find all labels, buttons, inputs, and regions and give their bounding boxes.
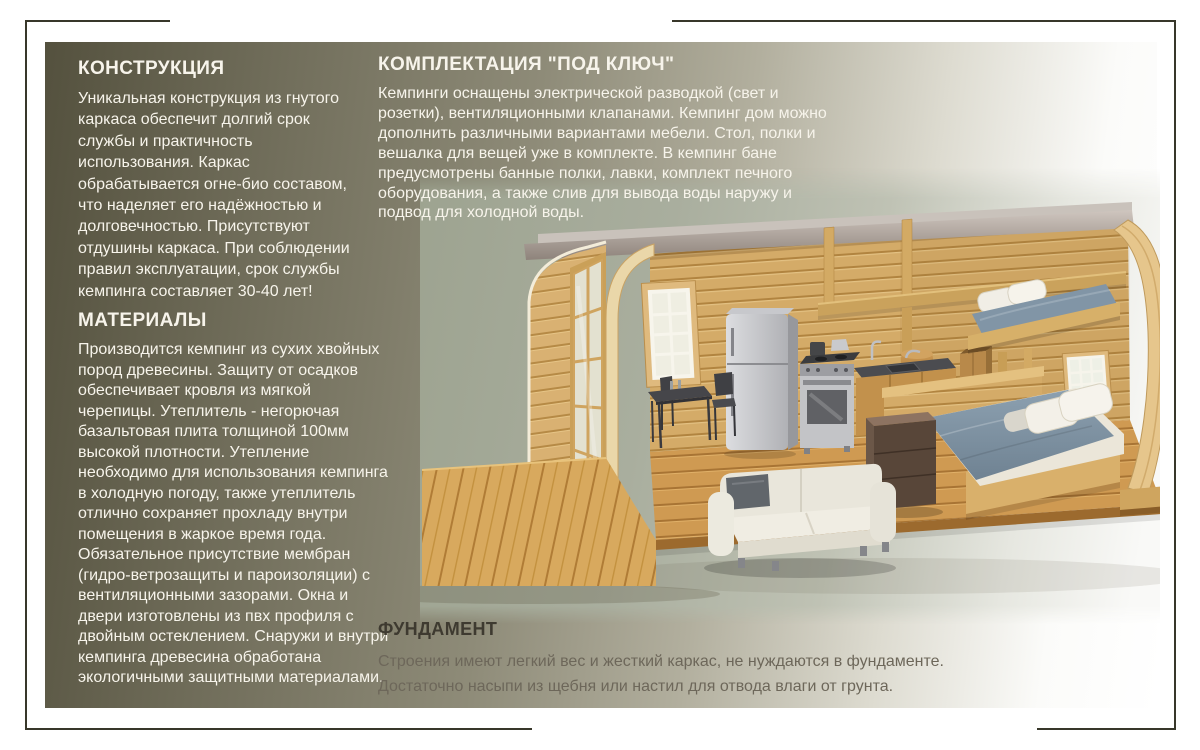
frame-left [25,20,27,730]
construction-heading: КОНСТРУКЦИЯ [78,58,393,80]
window-left [641,281,700,388]
camping-house-cutaway [420,168,1160,624]
foundation-heading: ФУНДАМЕНТ [378,619,948,640]
frame-right [1174,20,1176,730]
materials-heading: МАТЕРИАЛЫ [78,310,398,332]
fridge [724,308,798,459]
equipment-heading: КОМПЛЕКТАЦИЯ "ПОД КЛЮЧ" [378,54,913,76]
frame-bottom-segment-2 [1037,728,1176,730]
frame-top-segment-2 [672,20,1176,22]
house-illustration [420,168,1160,624]
section-equipment: КОМПЛЕКТАЦИЯ "ПОД КЛЮЧ" Кемпинги оснащен… [378,54,913,223]
materials-body: Производится кемпинг из сухих хвойных по… [78,340,398,689]
frame-top-segment-1 [25,20,170,22]
equipment-body: Кемпинги оснащены электрической разводко… [378,84,913,223]
frame-bottom-segment-1 [25,728,532,730]
section-construction: КОНСТРУКЦИЯ Уникальная конструкция из гн… [78,58,393,302]
foundation-body: Строения имеют легкий вес и жесткий карк… [378,649,948,699]
construction-body: Уникальная конструкция из гнутого каркас… [78,88,393,302]
sofa [704,464,896,578]
section-materials: МАТЕРИАЛЫ Производится кемпинг из сухих … [78,310,398,689]
stove [800,339,860,454]
section-foundation: ФУНДАМЕНТ Строения имеют легкий вес и же… [378,619,948,699]
